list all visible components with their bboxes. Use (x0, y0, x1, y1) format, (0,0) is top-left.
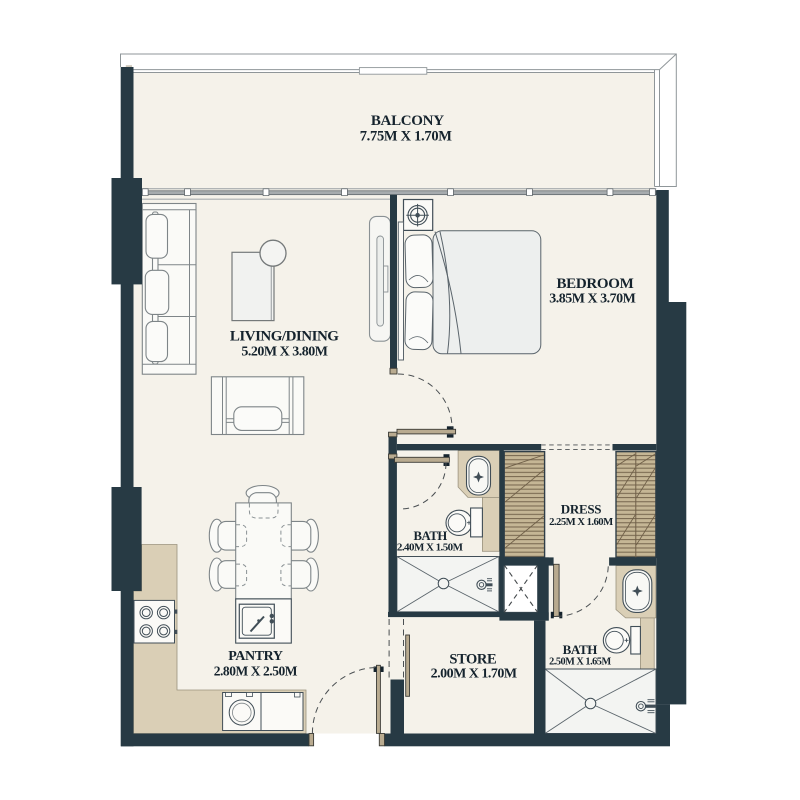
svg-text:PANTRY: PANTRY (228, 649, 283, 664)
svg-text:3.85M X 3.70M: 3.85M X 3.70M (549, 292, 635, 307)
svg-text:BATH: BATH (563, 642, 598, 657)
svg-text:2.25M X 1.60M: 2.25M X 1.60M (549, 516, 613, 528)
svg-text:BALCONY: BALCONY (371, 113, 444, 129)
svg-text:2.80M X 2.50M: 2.80M X 2.50M (214, 663, 298, 678)
svg-text:STORE: STORE (449, 652, 496, 668)
svg-text:BEDROOM: BEDROOM (556, 276, 633, 292)
svg-text:DRESS: DRESS (561, 501, 601, 516)
svg-text:LIVING/DINING: LIVING/DINING (230, 329, 339, 345)
svg-text:2.50M X 1.65M: 2.50M X 1.65M (549, 657, 611, 668)
svg-text:2.00M X 1.70M: 2.00M X 1.70M (431, 667, 517, 682)
svg-text:5.20M X 3.80M: 5.20M X 3.80M (241, 344, 327, 359)
svg-text:7.75M X 1.70M: 7.75M X 1.70M (360, 129, 453, 145)
svg-text:2.40M X 1.50M: 2.40M X 1.50M (397, 542, 464, 554)
